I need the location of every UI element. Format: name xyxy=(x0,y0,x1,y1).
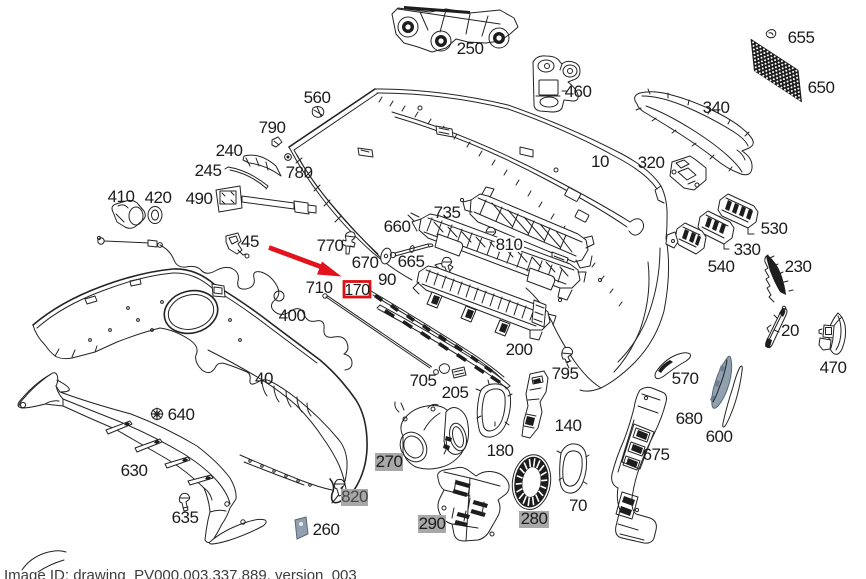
svg-text:820: 820 xyxy=(341,487,368,506)
svg-text:240: 240 xyxy=(216,141,243,160)
svg-text:70: 70 xyxy=(569,496,587,515)
svg-text:400: 400 xyxy=(279,306,306,325)
svg-text:540: 540 xyxy=(708,257,735,276)
svg-text:810: 810 xyxy=(496,235,523,254)
svg-text:470: 470 xyxy=(820,358,847,377)
svg-text:250: 250 xyxy=(457,39,484,58)
svg-text:420: 420 xyxy=(145,188,172,207)
svg-text:230: 230 xyxy=(785,257,812,276)
svg-text:655: 655 xyxy=(788,28,815,47)
svg-text:560: 560 xyxy=(304,88,331,107)
svg-text:330: 330 xyxy=(734,240,761,259)
svg-text:410: 410 xyxy=(108,187,135,206)
svg-text:705: 705 xyxy=(410,371,437,390)
svg-text:735: 735 xyxy=(434,203,461,222)
svg-text:20: 20 xyxy=(781,321,799,340)
svg-text:40: 40 xyxy=(255,369,273,388)
svg-text:660: 660 xyxy=(384,217,411,236)
svg-text:630: 630 xyxy=(121,461,148,480)
svg-text:640: 640 xyxy=(168,405,195,424)
svg-text:90: 90 xyxy=(378,270,396,289)
svg-text:600: 600 xyxy=(706,427,733,446)
svg-text:270: 270 xyxy=(376,452,403,471)
svg-text:790: 790 xyxy=(259,118,286,137)
svg-text:340: 340 xyxy=(703,98,730,117)
svg-text:635: 635 xyxy=(172,508,199,527)
svg-text:770: 770 xyxy=(317,236,344,255)
svg-text:530: 530 xyxy=(761,219,788,238)
svg-text:180: 180 xyxy=(487,441,514,460)
svg-text:45: 45 xyxy=(241,232,259,251)
svg-text:205: 205 xyxy=(442,383,469,402)
svg-text:320: 320 xyxy=(638,153,665,172)
svg-text:675: 675 xyxy=(643,445,670,464)
svg-text:665: 665 xyxy=(398,252,425,271)
svg-text:280: 280 xyxy=(521,509,548,528)
svg-text:140: 140 xyxy=(555,416,582,435)
svg-text:200: 200 xyxy=(506,340,533,359)
svg-text:680: 680 xyxy=(676,409,703,428)
svg-text:170: 170 xyxy=(344,282,370,299)
svg-text:260: 260 xyxy=(313,520,340,539)
svg-text:710: 710 xyxy=(306,278,333,297)
svg-text:795: 795 xyxy=(552,364,579,383)
svg-text:570: 570 xyxy=(672,369,699,388)
svg-text:245: 245 xyxy=(195,161,222,180)
svg-text:490: 490 xyxy=(186,189,213,208)
svg-text:650: 650 xyxy=(808,78,835,97)
svg-text:10: 10 xyxy=(591,152,609,171)
svg-text:460: 460 xyxy=(565,82,592,101)
svg-text:670: 670 xyxy=(352,253,379,272)
svg-text:290: 290 xyxy=(419,514,446,533)
